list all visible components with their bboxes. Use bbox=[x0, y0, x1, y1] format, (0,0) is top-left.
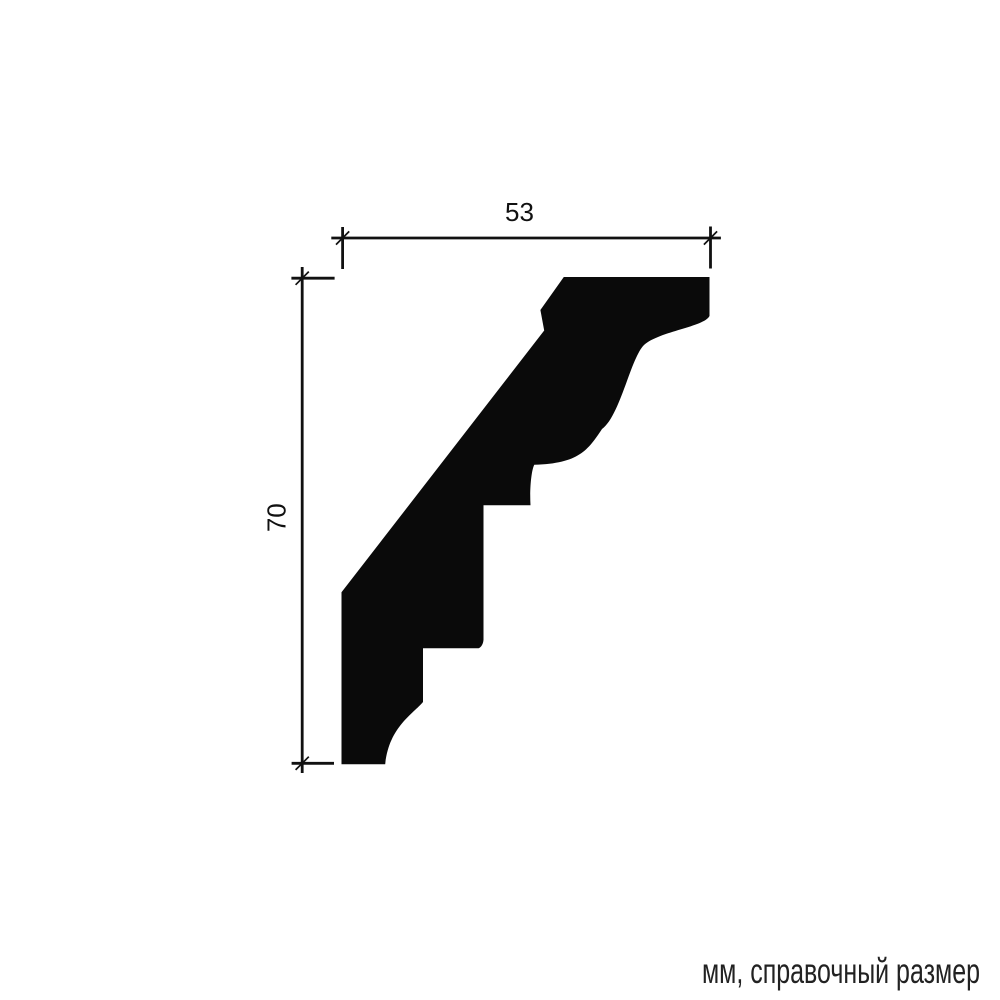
svg-text:70: 70 bbox=[261, 503, 291, 532]
svg-text:53: 53 bbox=[505, 197, 534, 227]
svg-text:мм, справочный размер: мм, справочный размер bbox=[702, 952, 980, 991]
